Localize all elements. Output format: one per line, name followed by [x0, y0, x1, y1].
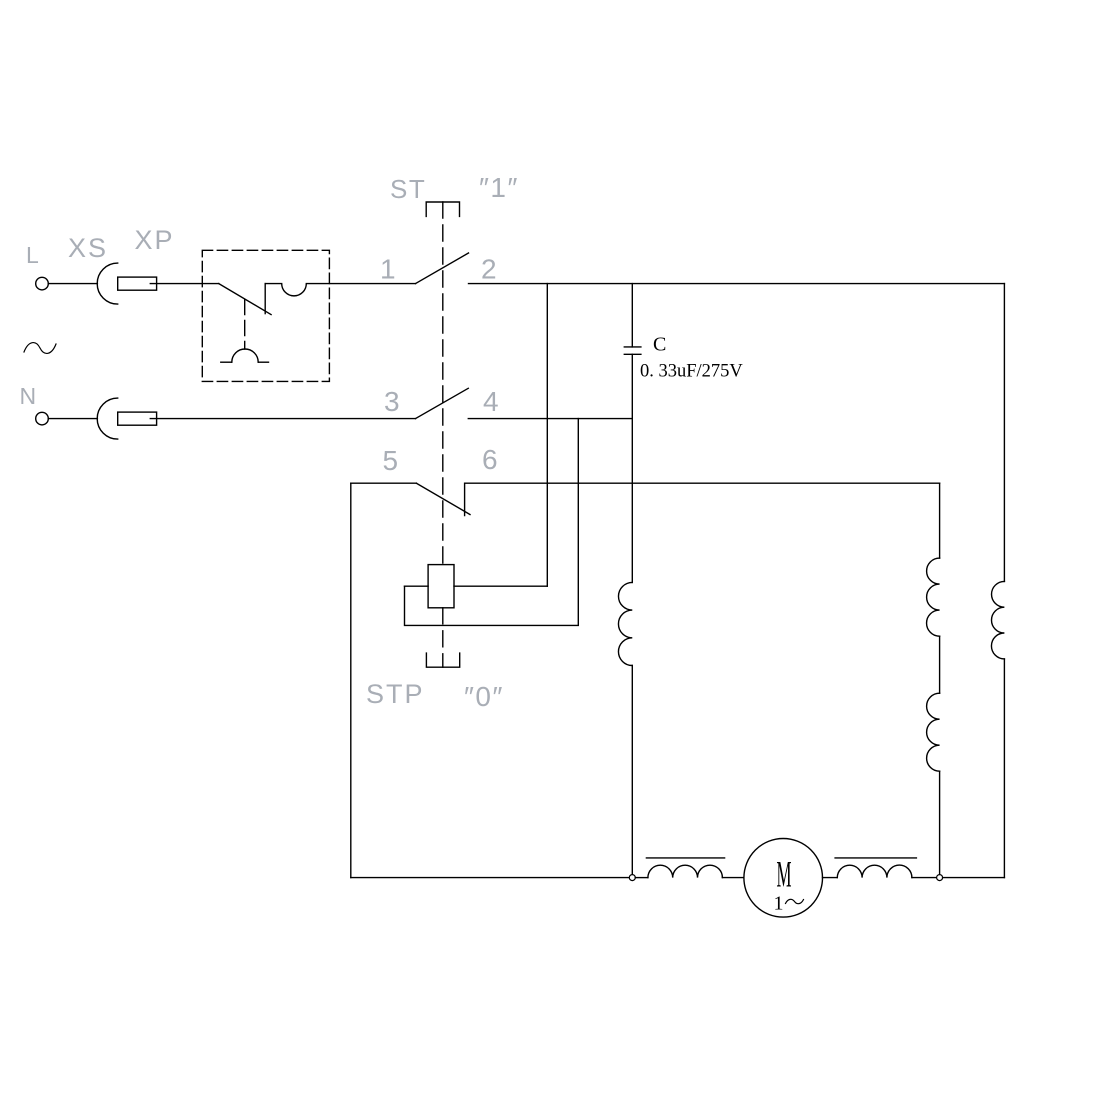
- svg-text:M: M: [777, 855, 792, 896]
- svg-text:2: 2: [481, 254, 497, 285]
- svg-text:0. 33uF/275V: 0. 33uF/275V: [640, 362, 743, 382]
- svg-text:3: 3: [384, 386, 400, 417]
- svg-text:″0″: ″0″: [464, 681, 504, 712]
- svg-text:XP: XP: [135, 225, 175, 255]
- svg-text:STP: STP: [366, 679, 425, 709]
- svg-text:N: N: [20, 383, 37, 409]
- svg-text:C: C: [653, 334, 666, 356]
- svg-text:4: 4: [483, 386, 499, 417]
- svg-text:5: 5: [383, 445, 399, 476]
- svg-text:1: 1: [380, 254, 396, 285]
- svg-text:L: L: [26, 242, 39, 268]
- svg-text:XS: XS: [68, 233, 108, 263]
- svg-text:6: 6: [482, 444, 498, 475]
- svg-text:1: 1: [774, 893, 784, 915]
- svg-text:″1″: ″1″: [479, 172, 519, 203]
- svg-text:ST: ST: [390, 174, 426, 204]
